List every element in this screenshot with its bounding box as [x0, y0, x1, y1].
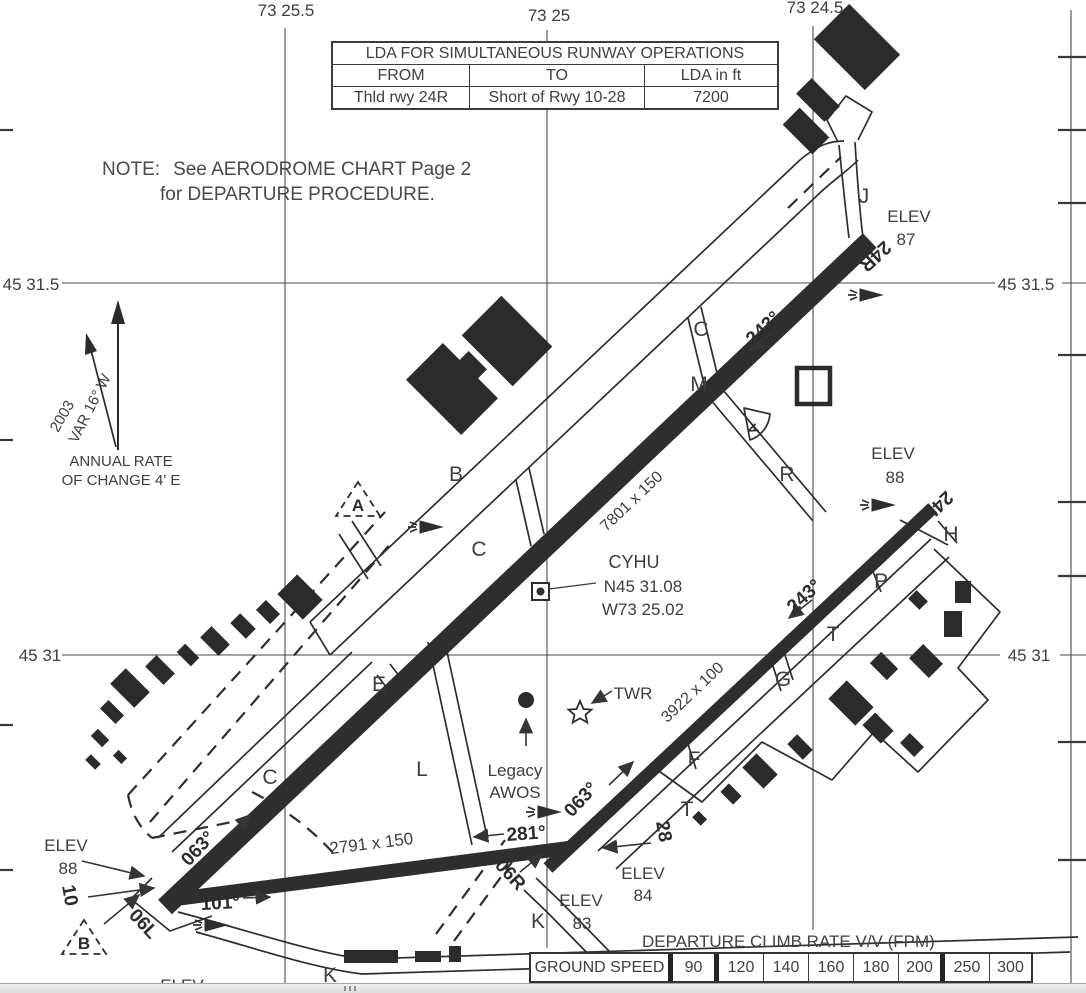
lda-from-value: Thld rwy 24R [333, 87, 470, 108]
taxiway-h-label: H [943, 523, 958, 546]
taxiway-e-label: E [372, 673, 386, 696]
elev-word: ELEV [559, 891, 603, 910]
lat-label: 45 31.5 [998, 275, 1055, 294]
airport-reference-point-icon [532, 583, 596, 600]
elev-word: ELEV [621, 864, 665, 883]
lda-col-from: FROM [333, 65, 470, 86]
lat-label: 45 31 [19, 646, 62, 665]
elev-06r-value: 83 [573, 914, 592, 933]
tower-label: TWR [614, 684, 653, 703]
taxiway-t-label: T [827, 623, 840, 646]
taxiway-l-label: L [416, 758, 428, 781]
rwy-10-label: 10 [57, 883, 81, 907]
lda-table-data-row: Thld rwy 24R Short of Rwy 10-28 7200 [333, 87, 777, 108]
taxiway-r-label: R [779, 463, 794, 486]
lda-value: 7200 [645, 87, 777, 108]
lda-table: LDA FOR SIMULTANEOUS RUNWAY OPERATIONS F… [331, 41, 779, 110]
lda-col-lda: LDA in ft [645, 65, 777, 86]
awos-label-line1: Legacy [488, 761, 543, 780]
taxiway-j-label: J [859, 185, 870, 208]
ground-speed-value: 160 [808, 954, 853, 981]
elev-28-value: 84 [634, 886, 653, 905]
ground-speed-value: 90 [668, 954, 714, 981]
pennant-icon [860, 499, 894, 511]
elev-word: ELEV [887, 207, 931, 226]
lat-label: 45 31 [1008, 646, 1051, 665]
pennant-icon [408, 521, 442, 533]
lon-label: 73 24.5 [787, 0, 844, 17]
lda-table-header-row: FROM TO LDA in ft [333, 65, 777, 87]
lon-label: 73 25.5 [258, 1, 315, 20]
climb-rate-title: DEPARTURE CLIMB RATE V/V (FPM) [642, 932, 935, 952]
lat-label: 45 31.5 [3, 275, 60, 294]
taxiway-k-label: K [531, 910, 545, 933]
taxiway-network [131, 96, 1078, 974]
elev-word: ELEV [44, 836, 88, 855]
ground-speed-value: 300 [989, 954, 1031, 981]
chart-note: NOTE:See AERODROME CHART Page 2 for DEPA… [102, 157, 471, 207]
scrollbar-grip[interactable] [344, 986, 359, 991]
buildings [85, 4, 971, 963]
taxiway-g-label: G [775, 668, 791, 691]
taxiway-p-label: P [874, 570, 888, 593]
elev-06l-value: 88 [59, 859, 78, 878]
lda-col-to: TO [470, 65, 645, 86]
ground-speed-label: GROUND SPEED [531, 954, 668, 981]
pennant-icon [848, 289, 882, 301]
taxiway-m-label: M [690, 373, 708, 396]
taxiway-c-label: C [471, 538, 486, 561]
taxiway-c-label: C [262, 766, 277, 789]
note-line1: See AERODROME CHART Page 2 [173, 159, 471, 180]
lda-to-value: Short of Rwy 10-28 [470, 87, 645, 108]
rwy-cross-dim: 2791 x 150 [328, 829, 414, 858]
airport-icao: CYHU [608, 552, 659, 572]
airport-lat: N45 31.08 [604, 577, 682, 596]
lda-table-title: LDA FOR SIMULTANEOUS RUNWAY OPERATIONS [333, 43, 777, 65]
hdg-281-label: 281° [506, 822, 547, 846]
taxiway-f-label: F [688, 748, 701, 771]
hold-a-label: A [352, 496, 364, 515]
taxiway-b-label: B [449, 463, 463, 486]
horizontal-scrollbar[interactable] [0, 983, 1086, 993]
annual-rate-line2: OF CHANGE 4' E [62, 472, 181, 489]
awos-label-line2: AWOS [489, 783, 540, 802]
hold-b-label: B [78, 934, 90, 953]
tower-star-icon [569, 701, 592, 723]
ground-speed-value: 140 [763, 954, 808, 981]
note-prefix: NOTE: [102, 159, 160, 180]
chart-canvas: 73 25.5 73 25 73 24.5 45 31.5 45 31 45 3… [0, 0, 1086, 993]
ground-speed-value: 180 [853, 954, 898, 981]
ground-speed-value: 250 [940, 954, 989, 981]
chart-labels: 73 25.5 73 25 73 24.5 45 31.5 45 31 45 3… [3, 0, 1055, 993]
ground-speed-value: 120 [714, 954, 763, 981]
elev-24r-value: 87 [897, 230, 916, 249]
hdg-101-label: 101° [200, 892, 240, 915]
elev-24l-value: 88 [886, 468, 905, 487]
rwy-06l-label: 06L [124, 905, 162, 944]
climb-rate-table: GROUND SPEED 90 120 140 160 180 200 250 … [529, 952, 1033, 983]
note-line2: for DEPARTURE PROCEDURE. [160, 184, 435, 205]
taxiway-c-label: C [693, 318, 708, 341]
awos-dot-icon [518, 692, 534, 708]
aerodrome-chart-page: 73 25.5 73 25 73 24.5 45 31.5 45 31 45 3… [0, 0, 1086, 993]
taxiway-t-label: T [681, 798, 694, 821]
elev-word: ELEV [871, 444, 915, 463]
rwy-28-label: 28 [651, 819, 675, 843]
pennant-icon [526, 806, 560, 818]
ground-speed-value: 200 [898, 954, 940, 981]
runway-06r-24l [544, 503, 938, 873]
annual-rate-line1: ANNUAL RATE [69, 453, 172, 470]
pennant-icon [193, 919, 227, 931]
airport-lon: W73 25.02 [602, 600, 684, 619]
lon-label: 73 25 [528, 6, 571, 25]
